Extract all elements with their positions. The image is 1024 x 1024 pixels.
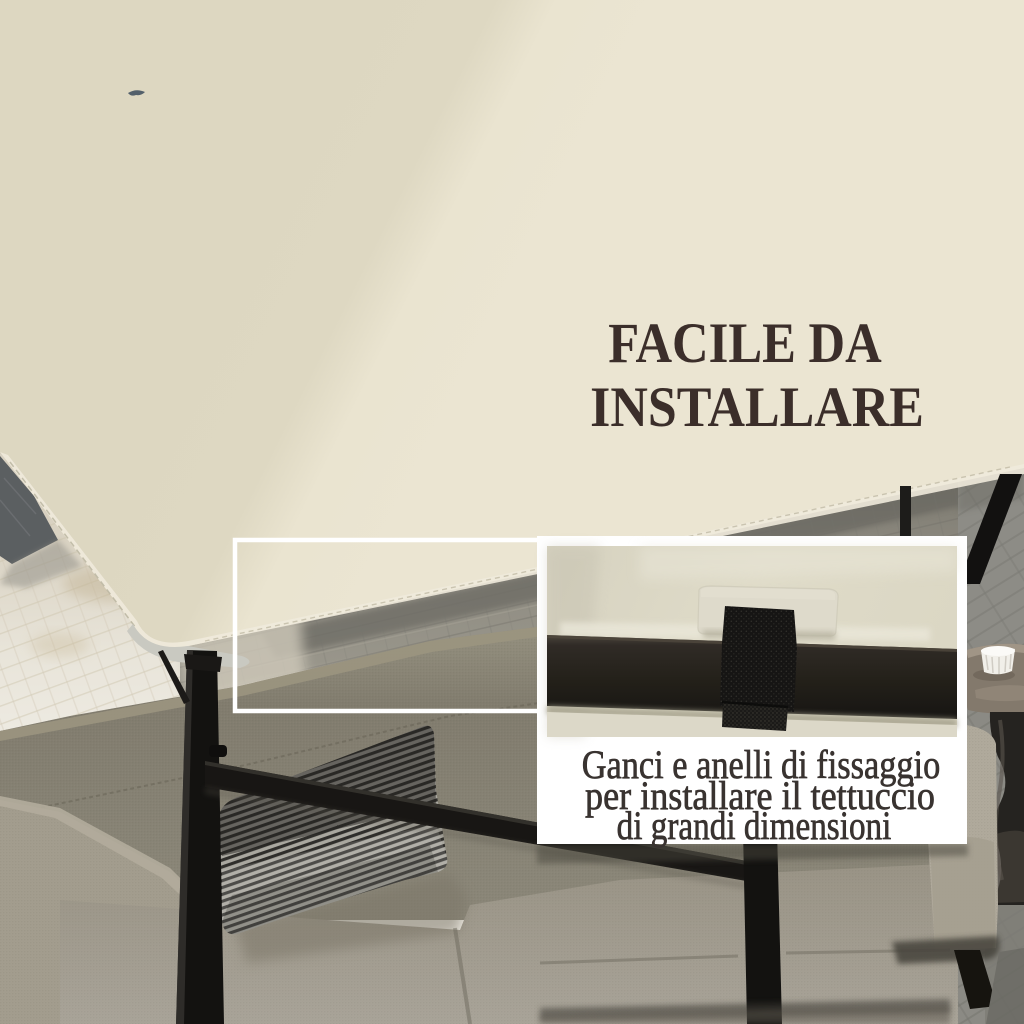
svg-text:FACILE DA: FACILE DA (608, 311, 882, 374)
svg-text:INSTALLARE: INSTALLARE (590, 375, 924, 439)
svg-text:di grandi dimensioni: di grandi dimensioni (617, 803, 892, 848)
